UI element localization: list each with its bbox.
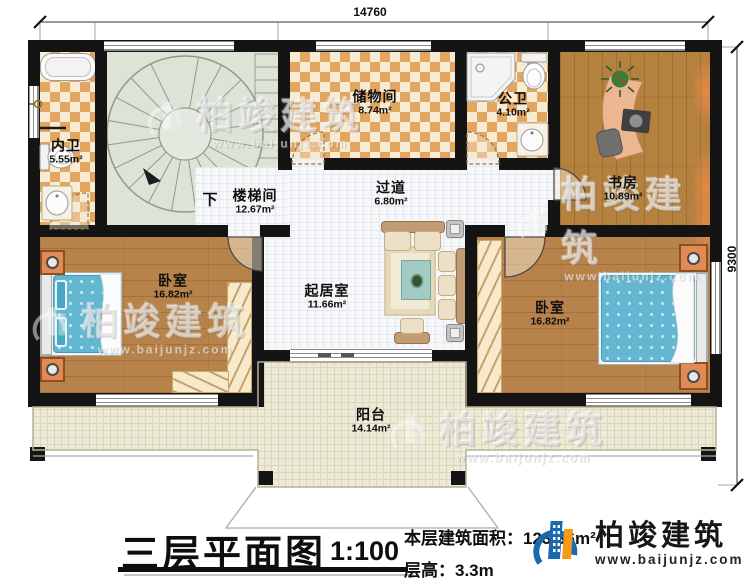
dimension-right: 9300 — [725, 237, 739, 281]
nightstand — [40, 357, 65, 382]
room-label-balcony: 阳台14.14m² — [351, 408, 390, 437]
pillow — [681, 281, 693, 315]
wardrobe-bedroom-right — [477, 240, 502, 393]
wall — [545, 225, 722, 237]
wall — [278, 40, 290, 158]
pillow — [681, 322, 693, 356]
sofa-three-seat — [436, 248, 468, 324]
side-table — [446, 324, 464, 342]
armchair — [394, 316, 430, 344]
window — [711, 262, 721, 354]
side-table — [446, 220, 464, 238]
window — [104, 41, 234, 51]
pillow — [55, 280, 67, 310]
company-name: 柏竣建筑 — [595, 521, 744, 551]
company-logo-icon — [528, 516, 586, 572]
window — [586, 394, 691, 406]
curtain-study-top — [692, 56, 710, 126]
room-label-corridor: 过道6.80m² — [374, 181, 407, 210]
lamp-icon — [46, 363, 59, 376]
wall — [278, 158, 292, 170]
pillow — [55, 317, 67, 347]
title-underline-shadow — [124, 574, 414, 576]
wall — [465, 225, 505, 237]
wall — [40, 225, 228, 237]
wall — [260, 225, 290, 237]
sliding-door-balcony — [290, 349, 432, 363]
room-label-bedroom-left: 卧室16.82m² — [153, 274, 192, 303]
sliding-door-handle — [318, 353, 331, 357]
plan-scale: 1:100 — [330, 536, 399, 567]
bathtub — [40, 53, 96, 81]
nightstand — [679, 244, 708, 272]
study-floor — [560, 52, 710, 237]
company-website: www.baijunjz.com — [595, 552, 744, 567]
nightstand — [40, 250, 65, 275]
coffee-table — [401, 260, 431, 300]
wall — [95, 40, 107, 237]
floor-height-text: 层高：3.3m — [404, 556, 494, 581]
bed-left — [40, 272, 122, 356]
window — [585, 41, 685, 51]
lamp-icon — [687, 252, 700, 265]
table-plant-icon — [410, 273, 424, 289]
cabinet-bedroom-left — [172, 371, 229, 393]
dimension-top: 14760 — [340, 5, 400, 19]
window — [96, 394, 218, 406]
window — [29, 86, 39, 138]
wall — [324, 158, 467, 170]
pillar — [258, 471, 273, 485]
room-label-stairwell: 下 楼梯间12.67m² — [202, 189, 277, 218]
room-label-bedroom-right: 卧室16.82m² — [530, 301, 569, 330]
room-label-study: 书房10.89m² — [603, 176, 642, 205]
room-label-bathroom-inner: 内卫5.55m² — [49, 139, 82, 168]
pillar — [451, 471, 466, 485]
company-logo: 柏竣建筑 www.baijunjz.com — [528, 516, 744, 572]
room-label-storage: 储物间8.74m² — [353, 90, 398, 119]
headboard — [696, 273, 707, 364]
window — [316, 41, 431, 51]
bed-right — [598, 272, 708, 365]
lamp-icon — [687, 370, 700, 383]
pillar — [30, 447, 45, 461]
headboard — [41, 273, 52, 355]
wall — [252, 237, 264, 407]
wall — [455, 40, 467, 170]
sliding-door-handle — [341, 353, 354, 357]
nightstand — [679, 362, 708, 390]
lamp-icon — [46, 256, 59, 269]
stair-down-label: 下 — [202, 189, 217, 210]
room-label-bathroom-public: 公卫4.10m² — [496, 92, 529, 121]
wardrobe-bedroom-left — [227, 282, 252, 393]
wall — [548, 40, 560, 168]
room-label-living-room: 起居室11.66m² — [305, 284, 350, 313]
pillar — [701, 447, 716, 461]
wall — [465, 225, 477, 407]
title-underline — [118, 567, 408, 572]
floor-plan-page: 柏竣建筑www.baijunjz.com 柏竣建筑www.baijunjz.co… — [0, 0, 750, 587]
